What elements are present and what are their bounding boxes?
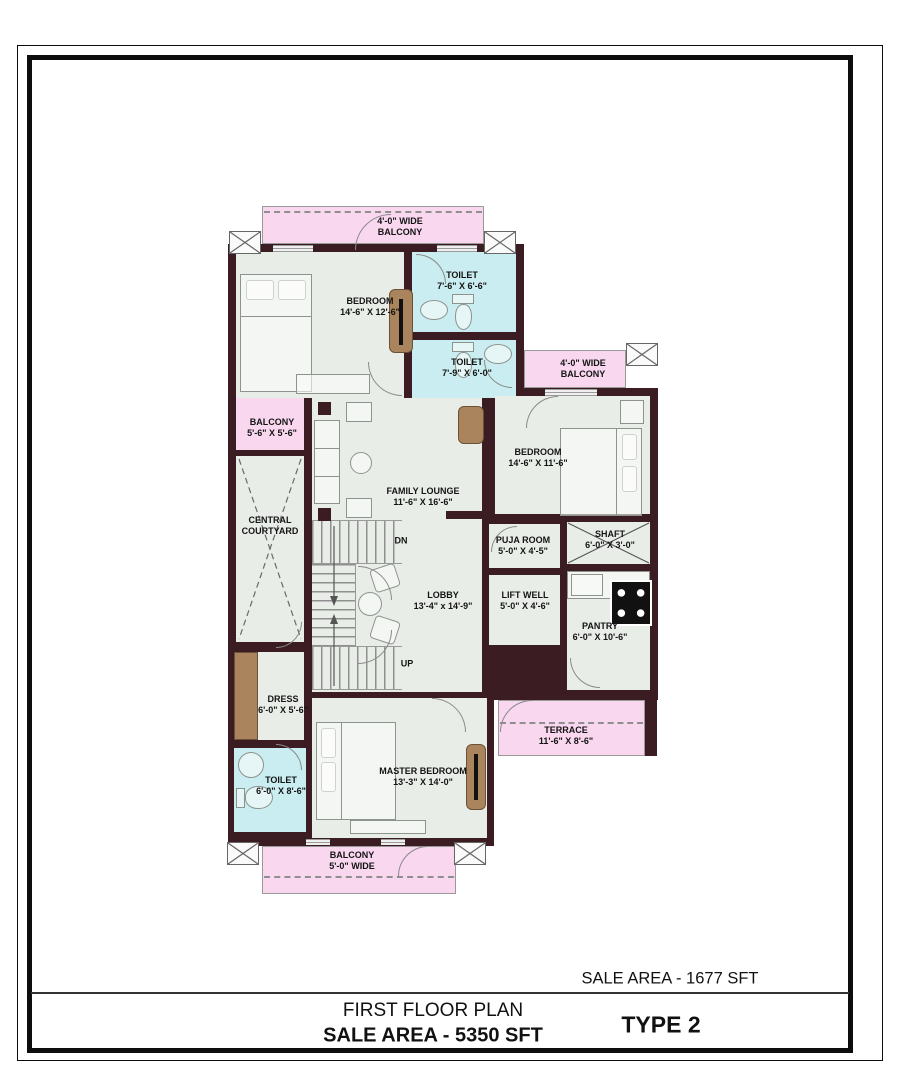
room-dims: 5'-0" X 4'-5" [498, 546, 548, 557]
room-dims: BALCONY [561, 369, 606, 380]
plan-title-text: FIRST FLOOR PLAN [343, 1000, 523, 1022]
room-label-terrace: TERRACE11'-6" X 8'-6" [539, 725, 593, 748]
room-dims: 14'-6" X 12'-6" [340, 307, 400, 318]
room-label-balcony-left: BALCONY5'-6" X 5'-6" [247, 417, 297, 440]
washbasin-icon [420, 300, 448, 320]
tv-screen-master [474, 754, 478, 800]
room-label-family-lounge: FAMILY LOUNGE11'-6" X 16'-6" [386, 486, 459, 509]
bench-master-bedroom [350, 820, 426, 834]
wc-tank [236, 788, 245, 808]
room-label-bedroom-2: BEDROOM14'-6" X 11'-6" [508, 447, 567, 470]
window [273, 245, 313, 252]
bed-bedroom-2 [560, 428, 642, 516]
room-dims: 6'-0" X 3'-0" [585, 540, 635, 551]
room-name: LIFT WELL [502, 590, 549, 601]
room-name: MASTER BEDROOM [379, 766, 467, 777]
column-pillar [227, 842, 259, 865]
window [381, 839, 405, 845]
dress-wardrobe [234, 652, 258, 740]
room-dims: 5'-0" X 4'-6" [500, 601, 550, 612]
room-name: FAMILY LOUNGE [386, 486, 459, 497]
room-label-master-bedroom: MASTER BEDROOM13'-3" X 14'-0" [379, 766, 467, 789]
room-label-balcony-bottom: BALCONY5'-0" WIDE [329, 850, 374, 873]
room-label-central-courtyard: CENTRALCOURTYARD [242, 515, 299, 538]
room-name: 4'-0" WIDE [560, 358, 605, 369]
room-dims: BALCONY [378, 227, 423, 238]
room-dims: 13'-4" x 14'-9" [414, 601, 473, 612]
room-label-toilet-3: TOILET6'-0" X 8'-6" [256, 775, 306, 798]
balcony-top-dashed-line [264, 211, 482, 213]
room-name: PANTRY [582, 621, 618, 632]
kitchen-sink-icon [571, 574, 603, 596]
room-dims: 14'-6" X 11'-6" [508, 458, 567, 469]
bench-bedroom-1 [296, 374, 370, 394]
up-text: UP [401, 658, 414, 669]
sheet-inner-border [27, 55, 853, 1053]
room-dims: 7'-6" X 6'-6" [437, 281, 487, 292]
room-dims: COURTYARD [242, 526, 299, 537]
column-pillar [229, 231, 261, 254]
dn-text: DN [395, 535, 408, 546]
type-label-text: TYPE 2 [621, 1012, 700, 1039]
balcony-bottom-dashed-line [264, 876, 454, 878]
column-pillar [626, 343, 658, 366]
room-name: SHAFT [595, 529, 625, 540]
room-label-pantry: PANTRY6'-0" X 10'-6" [573, 621, 628, 644]
stair-label-dn: DN [395, 535, 408, 546]
room-label-dress: DRESS6'-0" X 5'-6" [258, 694, 308, 717]
room-dims: 11'-6" X 8'-6" [539, 736, 593, 747]
room-name: TOILET [451, 357, 483, 368]
wc-tank [452, 342, 474, 352]
room-name: LOBBY [427, 590, 459, 601]
window [306, 839, 330, 845]
room-label-puja-room: PUJA ROOM5'-0" X 4'-5" [496, 535, 550, 558]
title-block-rule [31, 992, 849, 994]
sofa-lounge [314, 420, 340, 504]
armchair-lounge [346, 498, 372, 518]
room-label-toilet-2: TOILET7'-9" X 6'-0" [442, 357, 492, 380]
room-name: BALCONY [330, 850, 375, 861]
room-label-bedroom-1: BEDROOM14'-6" X 12'-6" [340, 296, 400, 319]
floor-sale-area-text: SALE AREA - 1677 SFT [581, 970, 758, 989]
room-name: TOILET [446, 270, 478, 281]
wall-stub-lounge-lobby [446, 511, 494, 519]
room-dims: 6'-0" X 10'-6" [573, 632, 628, 643]
column-pillar [454, 842, 486, 865]
room-name: PUJA ROOM [496, 535, 550, 546]
room-label-shaft: SHAFT6'-0" X 3'-0" [585, 529, 635, 552]
room-name: BEDROOM [346, 296, 393, 307]
coffee-table-lounge [350, 452, 372, 474]
wc-tank [452, 294, 474, 304]
window [545, 389, 597, 396]
stove-icon [610, 580, 652, 626]
room-dims: 7'-9" X 6'-0" [442, 368, 492, 379]
room-label-lift-well: LIFT WELL5'-0" X 4'-6" [500, 590, 550, 613]
cabinet-lounge [458, 406, 484, 444]
room-label-toilet-1: TOILET7'-6" X 6'-6" [437, 270, 487, 293]
armchair-lounge [346, 402, 372, 422]
bed-blanket-line [240, 316, 312, 317]
stair-label-up: UP [401, 658, 414, 669]
room-label-lobby: LOBBY13'-4" x 14'-9" [414, 590, 473, 613]
room-name: TERRACE [544, 725, 588, 736]
room-name: BALCONY [250, 417, 295, 428]
room-label-balcony-top: 4'-0" WIDEBALCONY [377, 216, 422, 239]
room-dims: 11'-6" X 16'-6" [393, 497, 452, 508]
room-label-balcony-right: 4'-0" WIDEBALCONY [560, 358, 605, 381]
bed-blanket-line [341, 722, 342, 820]
floor-plan-sheet: { "title_block": { "floor_sale_area": "S… [0, 0, 900, 1073]
column-marker [318, 402, 331, 415]
room-dims: 5'-0" WIDE [329, 861, 374, 872]
column-pillar [484, 231, 516, 254]
room-name: CENTRAL [248, 515, 291, 526]
bed-blanket-line [616, 428, 617, 516]
total-sale-area-text: SALE AREA - 5350 SFT [323, 1025, 543, 1048]
room-dims: 6'-0" X 8'-6" [256, 786, 306, 797]
room-name: BEDROOM [514, 447, 561, 458]
room-name: TOILET [265, 775, 297, 786]
room-name: DRESS [267, 694, 298, 705]
room-dims: 5'-6" X 5'-6" [247, 428, 297, 439]
nightstand-bedroom-2 [620, 400, 644, 424]
wc-bowl [455, 304, 472, 330]
window [437, 245, 477, 252]
column-marker [318, 508, 331, 521]
room-dims: 13'-3" X 14'-0" [393, 777, 453, 788]
courtyard-hatch [236, 456, 304, 642]
room-dims: 6'-0" X 5'-6" [258, 705, 308, 716]
room-name: 4'-0" WIDE [377, 216, 422, 227]
